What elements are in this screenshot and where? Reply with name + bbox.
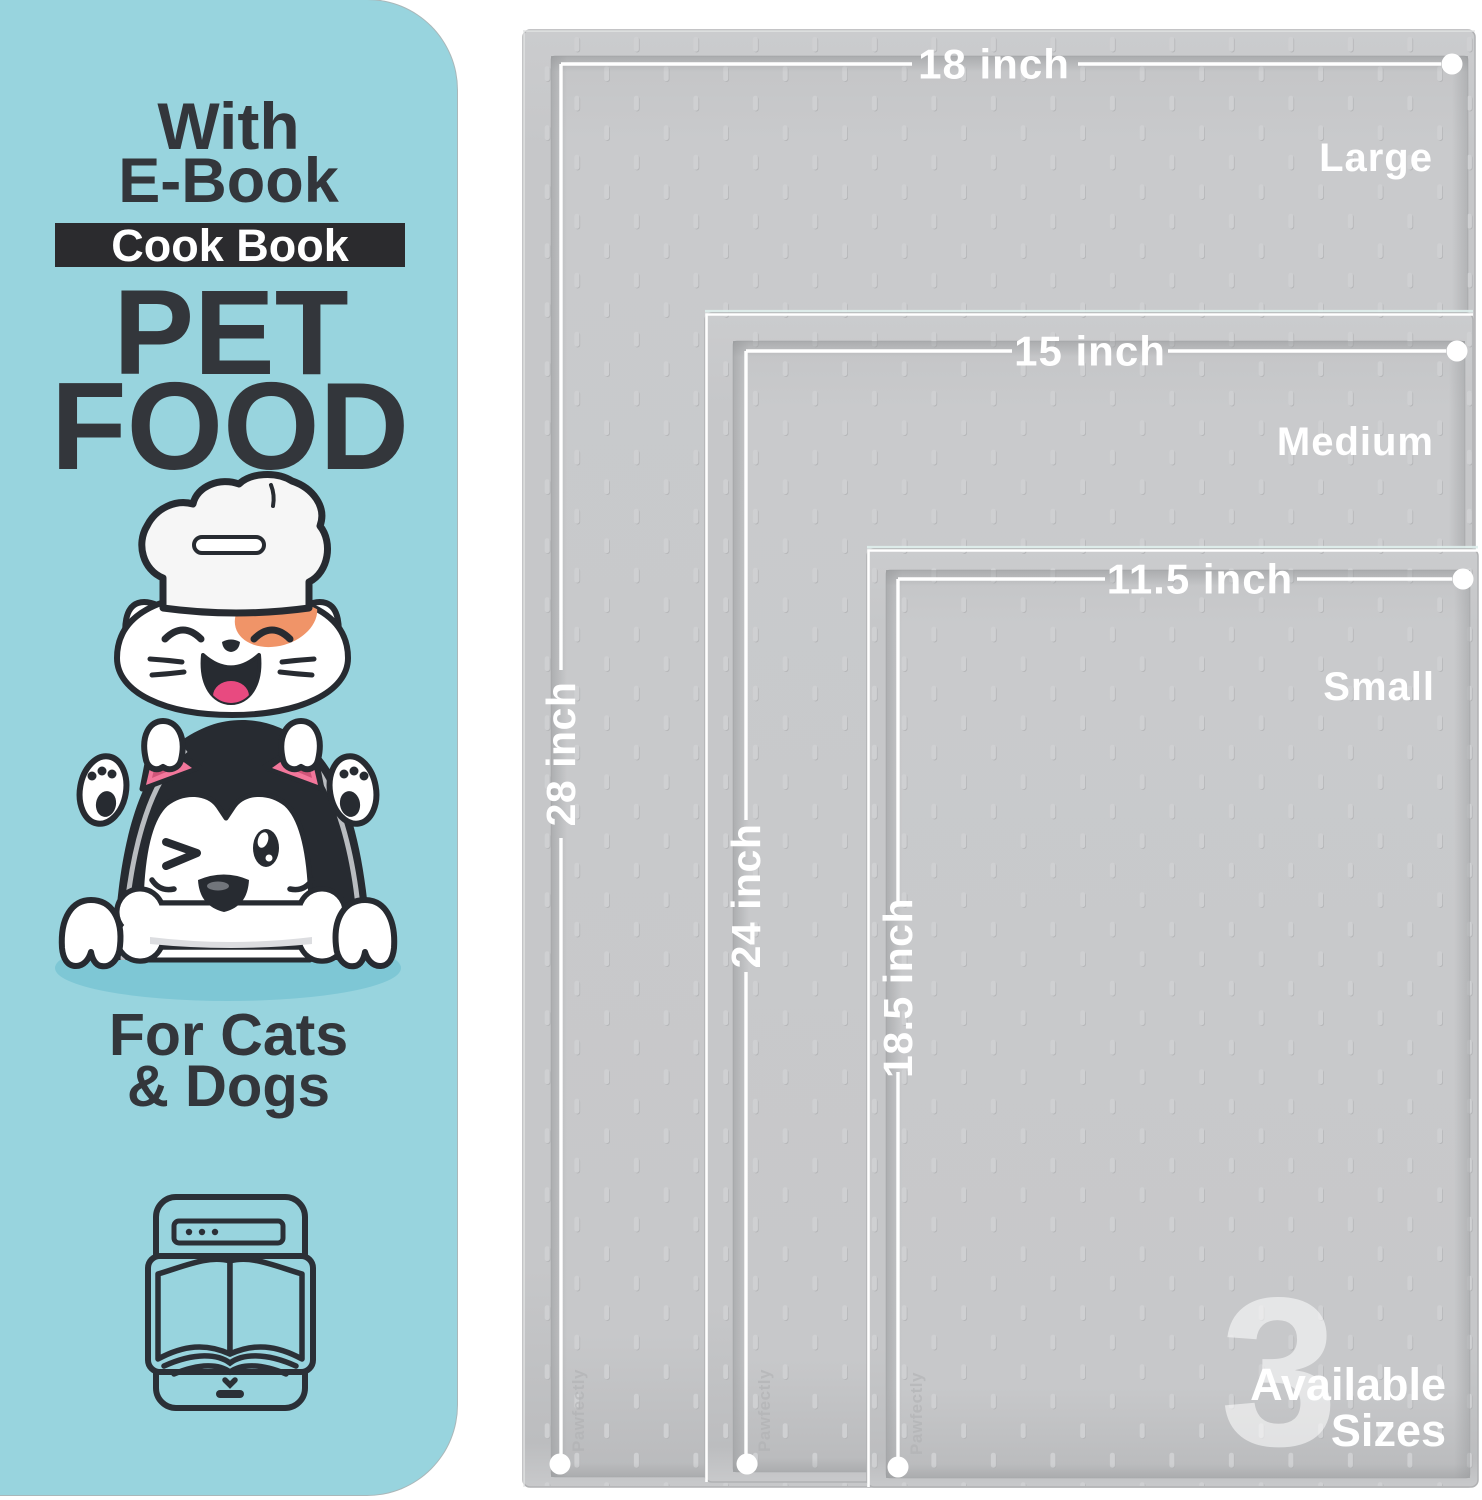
svg-text:Medium: Medium <box>1277 420 1434 464</box>
svg-text:Sizes: Sizes <box>1331 1405 1446 1456</box>
svg-text:11.5 inch: 11.5 inch <box>1107 556 1293 603</box>
svg-text:24 inch: 24 inch <box>723 824 769 969</box>
svg-text:Small: Small <box>1323 665 1435 709</box>
svg-text:Pawfectly: Pawfectly <box>569 1369 588 1452</box>
svg-text:15 inch: 15 inch <box>1014 328 1166 375</box>
svg-text:Pawfectly: Pawfectly <box>755 1369 774 1452</box>
svg-text:28 inch: 28 inch <box>538 682 584 827</box>
svg-text:Available: Available <box>1250 1359 1446 1410</box>
svg-text:Pawfectly: Pawfectly <box>907 1372 926 1455</box>
svg-text:Large: Large <box>1319 136 1433 180</box>
svg-text:18.5 inch: 18.5 inch <box>875 898 921 1078</box>
svg-text:18 inch: 18 inch <box>918 41 1070 88</box>
